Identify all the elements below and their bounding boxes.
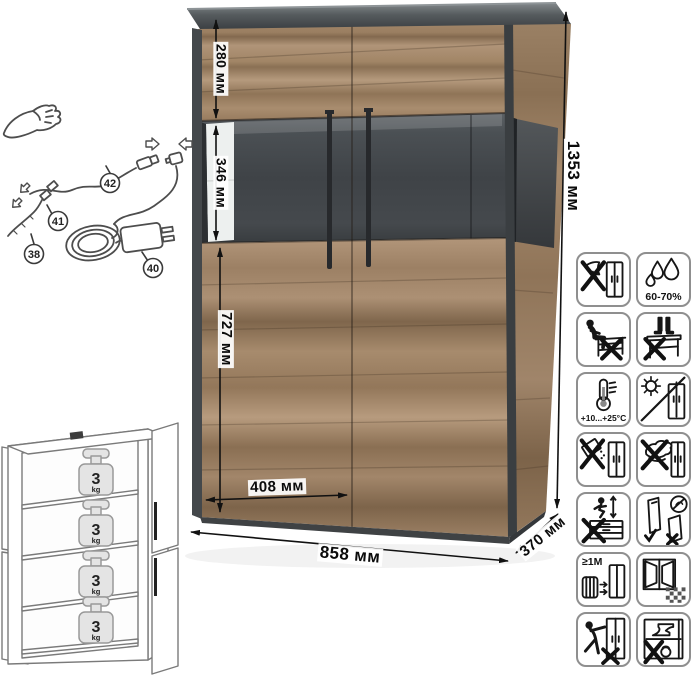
cable-coil xyxy=(63,222,122,265)
left-frame-strip xyxy=(192,28,202,519)
plug-connector xyxy=(165,152,183,166)
care-icon-label: ≥1M xyxy=(582,556,602,568)
weight-unit: kg xyxy=(92,485,101,494)
part-number-38: 38 xyxy=(28,249,40,261)
dimension-total-height: 1353 мм xyxy=(564,139,582,214)
dimension-bottom-section-height: 727 мм xyxy=(218,310,234,368)
care-icon-no-pushing xyxy=(576,612,631,667)
dimension-top-section-height: 280 мм xyxy=(214,42,229,96)
weight-unit: kg xyxy=(92,536,101,545)
care-icon-no-direct-sunlight xyxy=(636,372,691,427)
care-icon-carry-upright xyxy=(636,492,691,547)
cable-connector xyxy=(136,154,159,170)
care-icon-no-abrasive-cleaning xyxy=(636,432,691,487)
power-adapter-40 xyxy=(114,221,175,254)
care-icon-label: +10...+25°C xyxy=(581,413,626,423)
hand-sketch xyxy=(4,105,61,137)
dimension-glass-section-height: 346 мм xyxy=(214,156,229,210)
care-icons-grid: 60-70%+10...+25°C≥1M xyxy=(576,252,691,667)
care-icon-humidity-range: 60-70% xyxy=(636,252,691,307)
assembly-arrows xyxy=(9,138,192,211)
wiring-diagram: 42 41 38 40 xyxy=(4,105,192,277)
shelf-load-drawing: 3 kg 3 kg 3 kg 3 kg xyxy=(2,423,178,674)
weight-unit: kg xyxy=(92,587,101,596)
care-icon-keep-away-from-heat: ≥1M xyxy=(576,552,631,607)
care-icon-no-sharp-tools xyxy=(576,252,631,307)
care-icon-temperature-range: +10...+25°C xyxy=(576,372,631,427)
care-icon-no-heavy-items-inside xyxy=(636,612,691,667)
weight-unit: kg xyxy=(92,633,101,642)
shelf-weights: 3 kg 3 kg 3 kg 3 kg xyxy=(79,449,113,643)
furniture-spec-sheet: 42 41 38 40 3 kg 3 kg 3 kg xyxy=(0,0,700,678)
cabinet-photo xyxy=(185,3,571,568)
left-door-handle xyxy=(327,112,332,269)
side-glass-band xyxy=(511,118,558,248)
dimension-door-width: 408 мм xyxy=(248,478,306,496)
right-door-handle xyxy=(366,110,371,267)
care-icon-ventilate-room xyxy=(636,552,691,607)
bottom-doors xyxy=(198,238,510,537)
care-icon-no-spilling xyxy=(576,432,631,487)
part-number-42: 42 xyxy=(104,178,116,190)
care-icon-label: 60-70% xyxy=(645,291,681,303)
care-icon-no-sitting xyxy=(576,312,631,367)
care-icon-no-jumping xyxy=(576,492,631,547)
part-number-41: 41 xyxy=(52,216,64,228)
care-icon-no-standing xyxy=(636,312,691,367)
part-number-40: 40 xyxy=(147,263,159,275)
